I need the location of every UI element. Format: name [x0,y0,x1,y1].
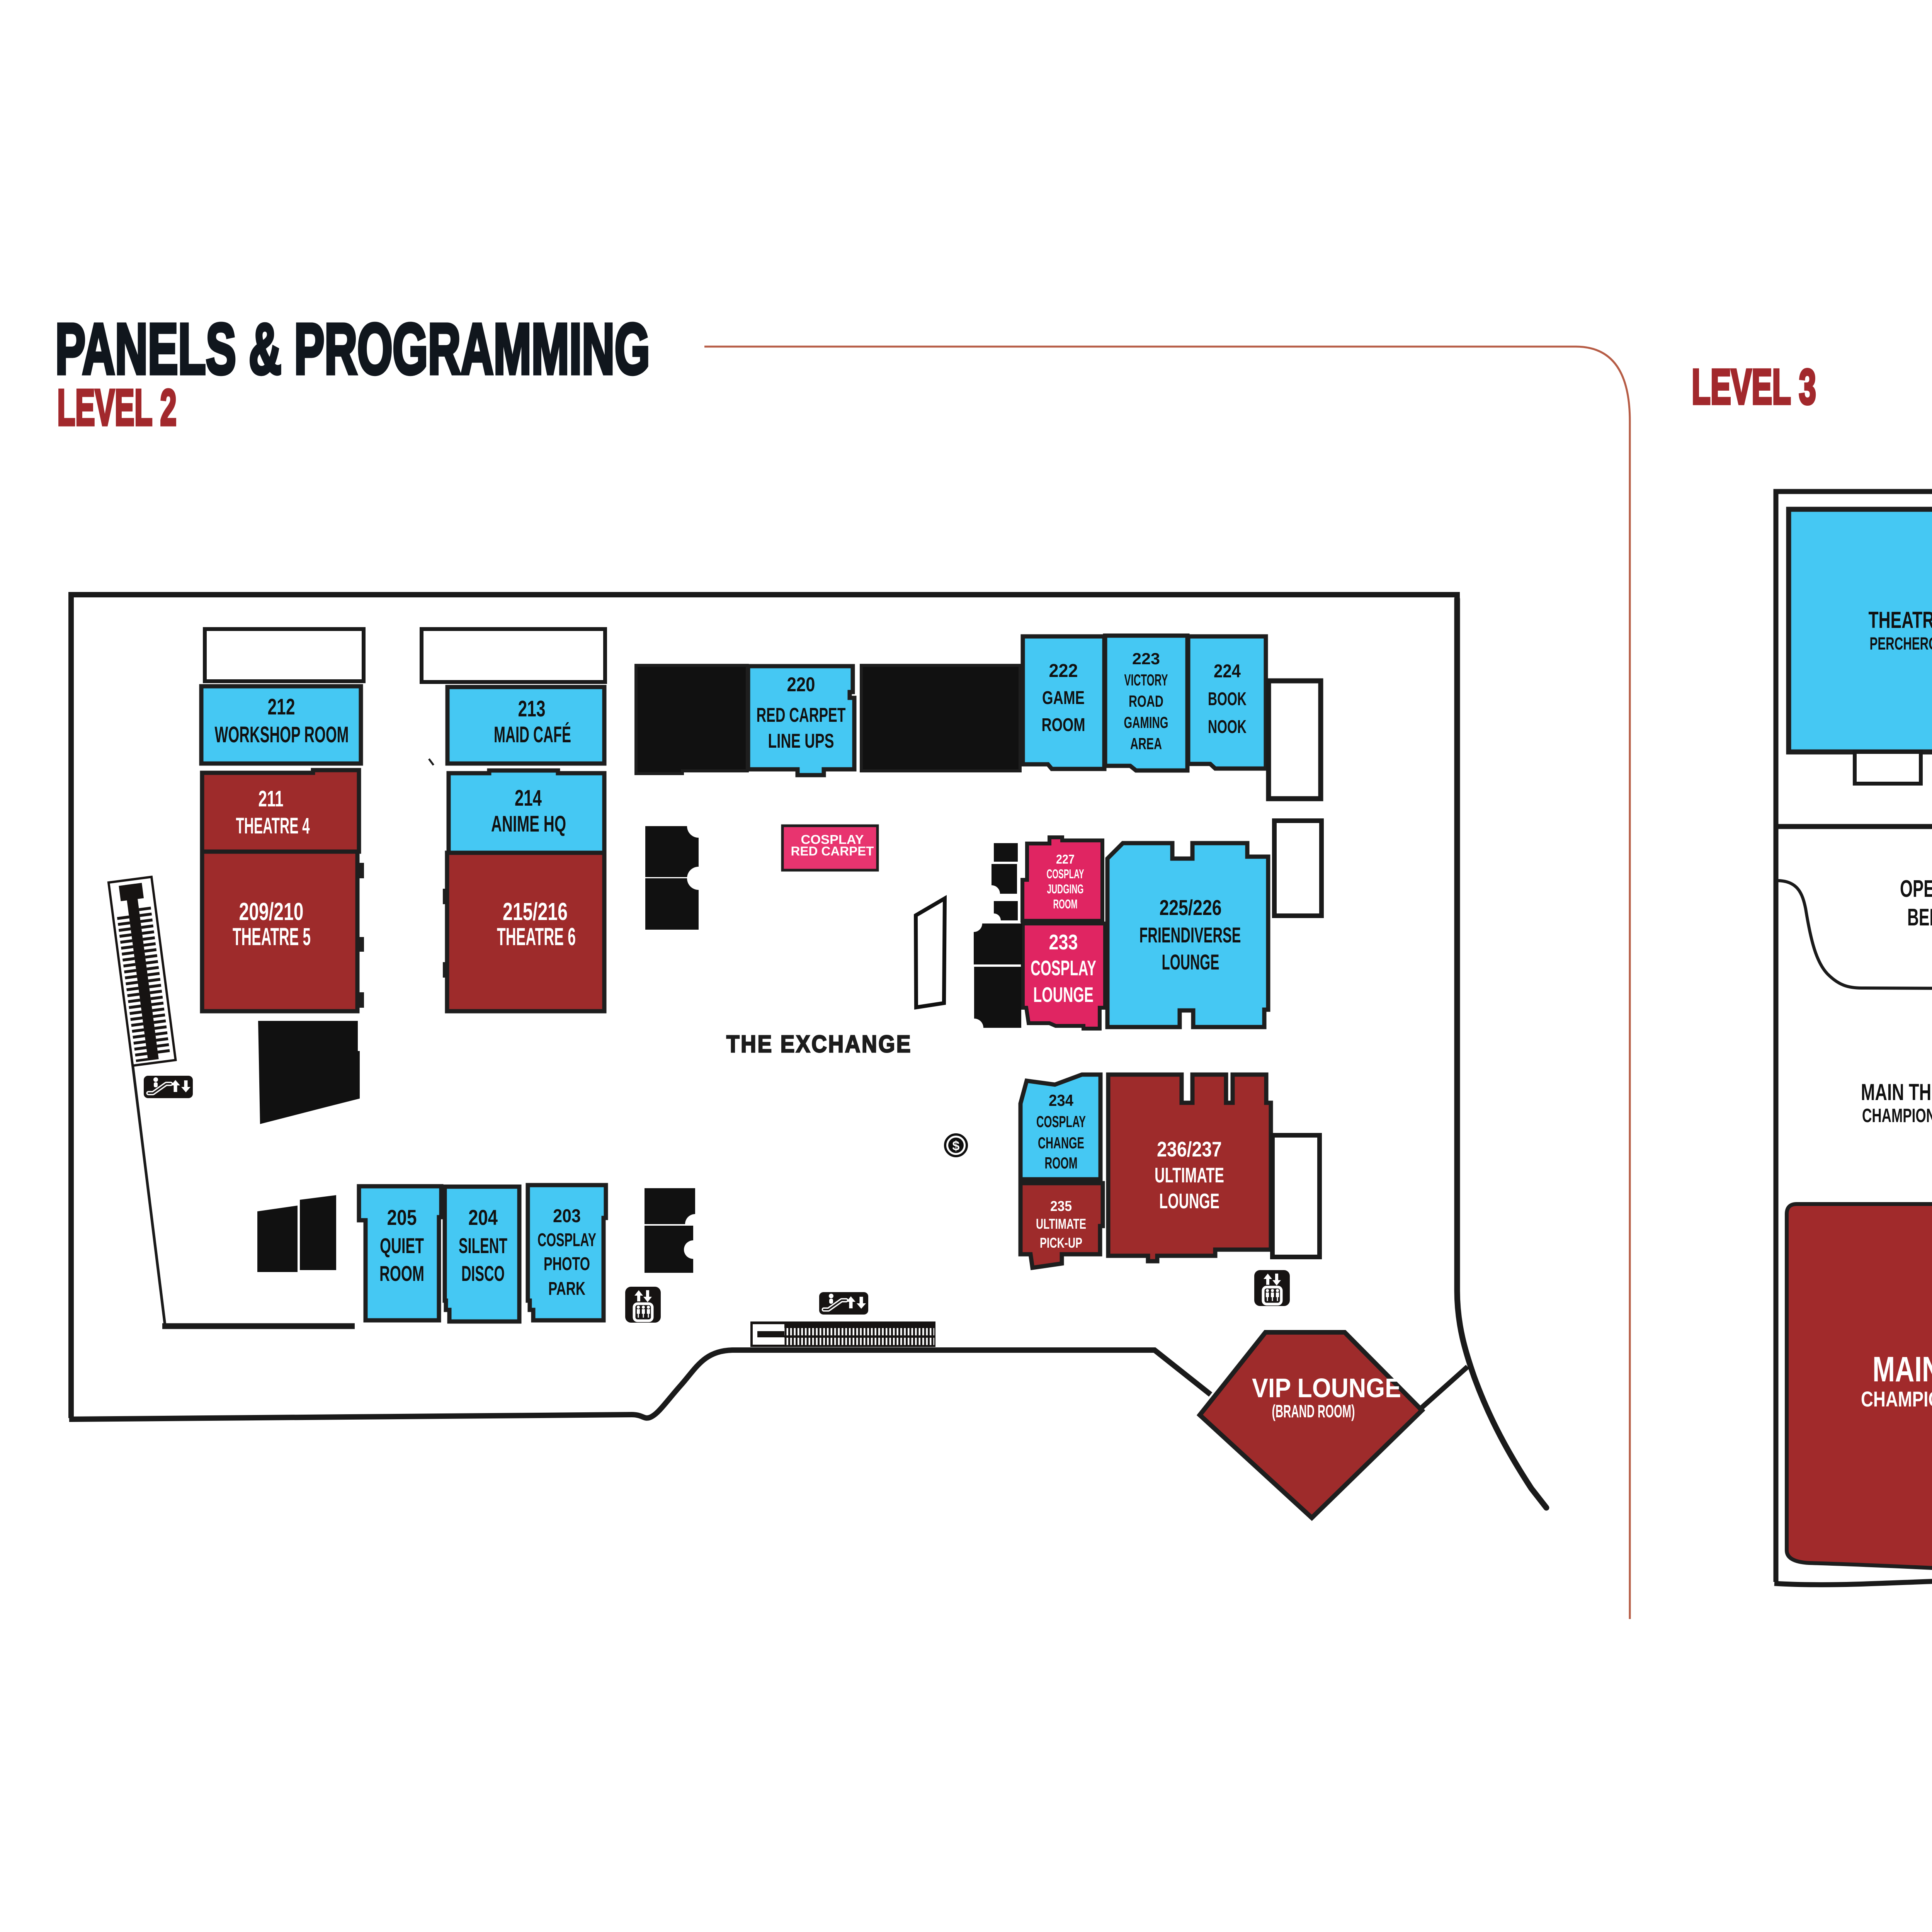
svg-text:234: 234 [1049,1091,1074,1109]
svg-text:MAIN THEATRE: MAIN THEATRE [1872,1350,1932,1389]
svg-text:236/237: 236/237 [1157,1137,1222,1161]
svg-text:215/216: 215/216 [503,898,568,925]
svg-text:(BRAND ROOM): (BRAND ROOM) [1272,1401,1355,1421]
svg-text:205: 205 [387,1205,417,1230]
svg-text:THE EXCHANGE: THE EXCHANGE [726,1031,912,1058]
svg-text:211: 211 [259,786,284,811]
svg-text:223: 223 [1132,650,1160,668]
svg-text:COSPLAY: COSPLAY [1036,1112,1086,1131]
svg-text:ANIME HQ: ANIME HQ [491,811,566,837]
svg-text:THEATRE 2: THEATRE 2 [1869,607,1932,633]
svg-text:224: 224 [1214,661,1241,682]
svg-text:GAMING: GAMING [1124,713,1168,731]
svg-text:ROOM: ROOM [379,1261,424,1286]
svg-text:VIP LOUNGE: VIP LOUNGE [1252,1373,1401,1403]
svg-text:225/226: 225/226 [1160,895,1222,920]
svg-text:ROOM: ROOM [1045,1154,1078,1172]
svg-text:$: $ [952,1139,960,1153]
svg-text:WORKSHOP ROOM: WORKSHOP ROOM [215,722,349,747]
svg-text:RED CARPET: RED CARPET [791,844,874,858]
svg-text:ULTIMATE: ULTIMATE [1155,1163,1224,1187]
svg-text:PERCHERON E: PERCHERON E [1870,634,1932,653]
svg-text:NOOK: NOOK [1208,717,1247,737]
svg-text:ROAD: ROAD [1129,692,1163,710]
svg-text:MAID CAFÉ: MAID CAFÉ [494,722,571,747]
svg-text:233: 233 [1049,930,1078,954]
svg-text:COSPLAY: COSPLAY [1031,956,1096,980]
svg-text:214: 214 [515,786,542,811]
svg-text:QUIET: QUIET [380,1233,424,1258]
svg-text:FRIENDIVERSE: FRIENDIVERSE [1139,923,1241,947]
svg-text:PHOTO: PHOTO [544,1254,590,1274]
svg-text:COSPLAY: COSPLAY [1047,867,1084,881]
svg-text:SILENT: SILENT [459,1233,507,1258]
svg-text:OPEN TO: OPEN TO [1900,876,1932,902]
svg-text:235: 235 [1050,1198,1072,1214]
svg-text:PICK-UP: PICK-UP [1040,1235,1082,1251]
svg-text:JUDGING: JUDGING [1047,882,1084,896]
svg-text:BELOW: BELOW [1907,904,1932,931]
svg-text:GAME: GAME [1042,688,1085,708]
svg-text:LOUNGE: LOUNGE [1162,950,1219,974]
svg-text:CHAMPIONS BALLROOM B: CHAMPIONS BALLROOM B [1861,1387,1932,1411]
svg-text:LEVEL 3: LEVEL 3 [1692,359,1816,415]
svg-text:MAIN THEATRE LINES: MAIN THEATRE LINES [1861,1079,1932,1105]
svg-text:RED CARPET: RED CARPET [757,704,846,726]
svg-text:LOUNGE: LOUNGE [1033,983,1094,1007]
svg-text:212: 212 [268,694,295,719]
svg-text:209/210: 209/210 [239,898,304,925]
svg-text:ROOM: ROOM [1042,715,1085,735]
svg-text:ROOM: ROOM [1053,897,1078,911]
svg-text:CHAMPIONS BALLROOM C: CHAMPIONS BALLROOM C [1862,1105,1932,1126]
svg-text:VICTORY: VICTORY [1124,671,1168,689]
svg-text:THEATRE 5: THEATRE 5 [233,923,311,951]
svg-text:AREA: AREA [1130,735,1162,753]
svg-text:PARK: PARK [548,1279,585,1299]
svg-text:203: 203 [553,1206,581,1226]
svg-text:227: 227 [1056,852,1075,866]
svg-text:220: 220 [787,673,815,696]
svg-text:THEATRE 4: THEATRE 4 [236,813,310,838]
svg-text:213: 213 [518,696,546,721]
svg-text:PANELS & PROGRAMMING: PANELS & PROGRAMMING [55,309,650,389]
svg-text:CHANGE: CHANGE [1038,1134,1084,1152]
svg-text:DISCO: DISCO [461,1261,505,1286]
svg-text:ULTIMATE: ULTIMATE [1036,1216,1086,1232]
svg-text:222: 222 [1049,661,1078,681]
svg-text:LOUNGE: LOUNGE [1159,1189,1219,1213]
svg-text:204: 204 [468,1205,498,1230]
svg-text:THEATRE 6: THEATRE 6 [497,923,576,951]
svg-text:LEVEL 2: LEVEL 2 [57,379,177,436]
svg-text:BOOK: BOOK [1208,689,1247,709]
svg-text:LINE UPS: LINE UPS [768,730,834,752]
svg-text:COSPLAY: COSPLAY [537,1230,596,1250]
